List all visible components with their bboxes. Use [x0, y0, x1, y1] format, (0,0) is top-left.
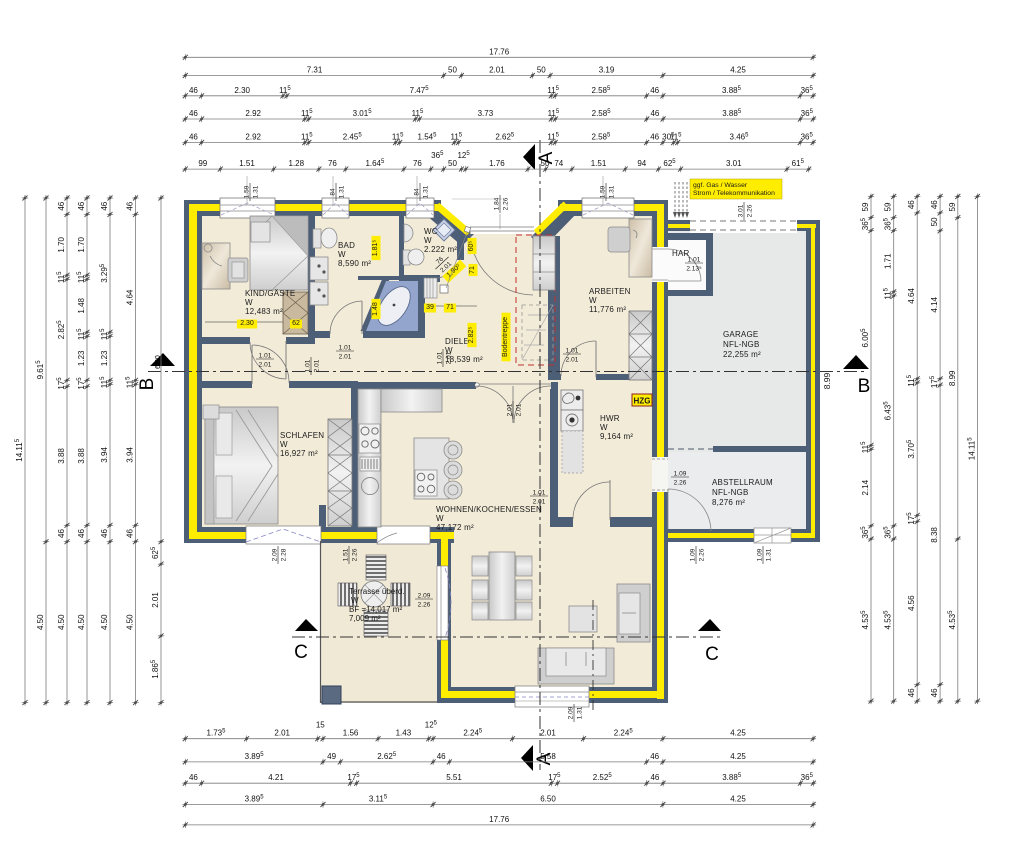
svg-text:71: 71	[446, 304, 454, 311]
svg-text:1.31: 1.31	[339, 185, 346, 198]
svg-text:W: W	[338, 250, 346, 259]
svg-text:46: 46	[100, 529, 109, 538]
svg-text:1.01: 1.01	[688, 257, 701, 264]
svg-text:DIELE: DIELE	[445, 337, 469, 346]
svg-text:W: W	[600, 423, 608, 432]
svg-text:W: W	[280, 440, 288, 449]
svg-text:GARAGE: GARAGE	[723, 330, 758, 339]
svg-text:5.58: 5.58	[540, 752, 556, 761]
svg-text:1.01: 1.01	[259, 353, 272, 360]
svg-text:2.01: 2.01	[339, 354, 352, 361]
svg-text:2.26: 2.26	[352, 548, 359, 561]
svg-text:59: 59	[948, 202, 957, 211]
svg-text:22,255 m²: 22,255 m²	[723, 350, 761, 359]
svg-text:1.31: 1.31	[609, 185, 616, 198]
svg-text:3.94: 3.94	[100, 447, 109, 463]
svg-text:2.01: 2.01	[274, 729, 290, 738]
svg-text:46: 46	[77, 529, 86, 538]
svg-text:Terrasse überd.: Terrasse überd.	[349, 587, 405, 596]
svg-text:2.01: 2.01	[446, 351, 453, 364]
svg-text:7.31: 7.31	[307, 66, 323, 75]
svg-text:1.43: 1.43	[396, 729, 412, 738]
svg-text:1.51: 1.51	[343, 548, 350, 561]
svg-text:46: 46	[57, 201, 66, 210]
svg-text:47,172 m²: 47,172 m²	[436, 523, 474, 532]
svg-text:W: W	[589, 296, 597, 305]
svg-text:2.92: 2.92	[245, 133, 261, 142]
svg-text:1.23: 1.23	[100, 350, 109, 366]
svg-text:46: 46	[650, 86, 659, 95]
svg-text:3.01: 3.01	[726, 159, 742, 168]
svg-text:BAD: BAD	[338, 241, 355, 250]
svg-text:46: 46	[57, 529, 66, 538]
svg-text:46: 46	[930, 688, 939, 697]
svg-text:1.59: 1.59	[244, 185, 251, 198]
svg-text:1.01: 1.01	[339, 345, 352, 352]
svg-text:3.88: 3.88	[77, 448, 86, 464]
svg-text:6.50: 6.50	[540, 795, 556, 804]
svg-text:8.38: 8.38	[930, 527, 939, 543]
svg-text:1.09: 1.09	[690, 548, 697, 561]
svg-text:2.01: 2.01	[507, 403, 514, 416]
svg-text:50: 50	[541, 159, 550, 168]
svg-text:8.99: 8.99	[948, 370, 957, 386]
svg-text:W: W	[245, 298, 253, 307]
svg-text:46: 46	[189, 86, 198, 95]
svg-text:46: 46	[650, 752, 659, 761]
svg-text:39: 39	[426, 304, 434, 311]
svg-text:84: 84	[330, 188, 337, 196]
svg-text:1.31: 1.31	[577, 706, 584, 719]
svg-text:4.25: 4.25	[730, 752, 746, 761]
svg-text:1.28: 1.28	[289, 159, 305, 168]
svg-text:50: 50	[930, 217, 939, 226]
svg-text:4.25: 4.25	[730, 729, 746, 738]
svg-text:ggf. Gas / Wasser: ggf. Gas / Wasser	[693, 182, 748, 189]
svg-text:1.59: 1.59	[600, 185, 607, 198]
svg-text:C: C	[705, 644, 719, 665]
svg-text:46: 46	[126, 529, 135, 538]
svg-text:1.48: 1.48	[77, 297, 86, 313]
svg-text:3.73: 3.73	[478, 109, 494, 118]
svg-text:2.82⁵: 2.82⁵	[468, 327, 475, 344]
svg-text:ARBEITEN: ARBEITEN	[589, 287, 631, 296]
svg-text:1.09: 1.09	[674, 471, 687, 478]
svg-text:1.01: 1.01	[437, 351, 444, 364]
svg-text:4.25: 4.25	[730, 795, 746, 804]
svg-text:2.01: 2.01	[516, 403, 523, 416]
svg-text:5.51: 5.51	[446, 773, 462, 782]
svg-text:76: 76	[413, 159, 422, 168]
svg-text:1.84: 1.84	[494, 197, 501, 210]
svg-text:WOHNEN/KOCHEN/ESSEN: WOHNEN/KOCHEN/ESSEN	[436, 505, 542, 514]
svg-text:1.76: 1.76	[489, 159, 505, 168]
svg-text:2.01: 2.01	[151, 592, 160, 608]
svg-text:1.70: 1.70	[77, 236, 86, 252]
svg-text:Strom / Telekommunikation: Strom / Telekommunikation	[693, 190, 775, 197]
svg-text:NFL-NGB: NFL-NGB	[712, 488, 749, 497]
svg-text:59: 59	[884, 202, 893, 211]
svg-text:4.56: 4.56	[907, 595, 916, 611]
svg-text:1.31: 1.31	[766, 548, 773, 561]
svg-text:46: 46	[189, 109, 198, 118]
svg-text:W: W	[351, 596, 359, 605]
svg-text:2.92: 2.92	[245, 109, 261, 118]
svg-text:2.26: 2.26	[747, 204, 754, 217]
svg-text:B: B	[858, 376, 871, 397]
svg-text:2.01: 2.01	[489, 66, 505, 75]
svg-text:8.99: 8.99	[822, 372, 832, 389]
svg-text:BF =14,017 m²: BF =14,017 m²	[349, 605, 402, 614]
svg-text:76: 76	[328, 159, 337, 168]
svg-text:46: 46	[189, 133, 198, 142]
svg-text:8,276 m²: 8,276 m²	[712, 498, 745, 507]
svg-text:1.01: 1.01	[566, 348, 579, 355]
svg-text:2.01: 2.01	[566, 357, 579, 364]
svg-text:4.64: 4.64	[126, 289, 135, 305]
svg-text:2.09: 2.09	[568, 706, 575, 719]
svg-text:46: 46	[77, 201, 86, 210]
svg-text:8,590 m²: 8,590 m²	[338, 259, 371, 268]
svg-text:2.28: 2.28	[281, 548, 288, 561]
svg-text:WC: WC	[424, 227, 438, 236]
svg-text:4.50: 4.50	[126, 614, 135, 630]
svg-text:4.21: 4.21	[268, 773, 284, 782]
svg-text:2.26: 2.26	[503, 197, 510, 210]
svg-text:3.88: 3.88	[57, 448, 66, 464]
svg-text:99: 99	[198, 159, 207, 168]
svg-text:1.09: 1.09	[757, 548, 764, 561]
svg-text:9,164 m²: 9,164 m²	[600, 432, 633, 441]
svg-text:11,776 m²: 11,776 m²	[589, 305, 626, 314]
svg-text:49: 49	[327, 752, 336, 761]
svg-text:50: 50	[448, 66, 457, 75]
svg-text:1.01: 1.01	[533, 490, 546, 497]
svg-text:4.50: 4.50	[77, 614, 86, 630]
svg-text:1.48: 1.48	[372, 302, 379, 316]
svg-text:1.23: 1.23	[77, 350, 86, 366]
svg-text:1.51: 1.51	[239, 159, 255, 168]
svg-text:2.01: 2.01	[533, 499, 546, 506]
svg-text:1.81⁵: 1.81⁵	[372, 240, 379, 257]
svg-text:KIND/GÄSTE: KIND/GÄSTE	[245, 289, 295, 298]
svg-text:7,009 m²: 7,009 m²	[349, 614, 381, 623]
svg-text:W: W	[424, 236, 432, 245]
svg-text:2.26: 2.26	[674, 480, 687, 487]
svg-text:46: 46	[907, 200, 916, 209]
svg-text:12,483 m²: 12,483 m²	[245, 307, 283, 316]
svg-text:1.01: 1.01	[305, 359, 312, 372]
svg-text:1.70: 1.70	[57, 236, 66, 252]
svg-text:HZG: HZG	[634, 397, 651, 406]
svg-text:1.51: 1.51	[591, 159, 607, 168]
svg-text:1.31: 1.31	[253, 185, 260, 198]
svg-text:46: 46	[189, 773, 198, 782]
svg-text:4.50: 4.50	[57, 614, 66, 630]
svg-text:2.09: 2.09	[272, 548, 279, 561]
svg-text:2.01: 2.01	[314, 359, 321, 372]
svg-text:3.01: 3.01	[738, 204, 745, 217]
svg-text:16,927 m²: 16,927 m²	[280, 449, 318, 458]
svg-text:SCHLAFEN: SCHLAFEN	[280, 431, 324, 440]
svg-text:46: 46	[930, 200, 939, 209]
svg-text:3.94: 3.94	[126, 447, 135, 463]
svg-text:46: 46	[650, 133, 659, 142]
svg-text:2.26: 2.26	[699, 548, 706, 561]
svg-text:3.19: 3.19	[599, 66, 615, 75]
svg-text:2.14: 2.14	[861, 479, 870, 495]
svg-text:2.30: 2.30	[234, 86, 250, 95]
svg-text:71: 71	[469, 266, 476, 274]
svg-text:15: 15	[316, 721, 325, 730]
svg-text:B: B	[137, 378, 158, 391]
svg-text:4.14: 4.14	[930, 296, 939, 312]
svg-text:2.222 m²: 2.222 m²	[424, 245, 457, 254]
svg-text:1.31: 1.31	[423, 185, 430, 198]
svg-text:62: 62	[292, 320, 300, 327]
svg-text:ABSTELLRAUM: ABSTELLRAUM	[712, 478, 773, 487]
svg-text:4.50: 4.50	[36, 614, 45, 630]
svg-text:17.76: 17.76	[489, 47, 510, 56]
svg-text:4.25: 4.25	[730, 66, 746, 75]
svg-text:1.71: 1.71	[884, 253, 893, 269]
svg-text:2.01: 2.01	[540, 729, 556, 738]
svg-text:46: 46	[907, 688, 916, 697]
svg-text:46: 46	[126, 201, 135, 210]
svg-text:NFL-NGB: NFL-NGB	[723, 340, 760, 349]
svg-text:60⁵: 60⁵	[468, 241, 475, 252]
svg-text:2.01: 2.01	[259, 362, 272, 369]
svg-text:50: 50	[537, 66, 546, 75]
svg-text:4.50: 4.50	[100, 614, 109, 630]
svg-text:17.76: 17.76	[489, 815, 510, 824]
svg-text:2.30: 2.30	[240, 320, 254, 327]
svg-text:46: 46	[650, 773, 659, 782]
svg-text:2.26: 2.26	[418, 602, 431, 609]
svg-text:C: C	[294, 642, 308, 663]
svg-text:2.13⁵: 2.13⁵	[686, 266, 702, 273]
svg-text:59: 59	[861, 202, 870, 211]
svg-text:84: 84	[414, 188, 421, 196]
svg-text:94: 94	[637, 159, 646, 168]
svg-text:Bodentreppe: Bodentreppe	[502, 317, 509, 357]
svg-text:W: W	[436, 514, 444, 523]
svg-text:74: 74	[554, 159, 563, 168]
svg-text:4.64: 4.64	[907, 288, 916, 304]
svg-text:50: 50	[448, 159, 457, 168]
svg-text:46: 46	[650, 109, 659, 118]
svg-text:2.09: 2.09	[418, 593, 431, 600]
svg-text:HWR: HWR	[600, 414, 620, 423]
svg-text:46: 46	[437, 752, 446, 761]
svg-text:1.56: 1.56	[343, 729, 359, 738]
svg-text:46: 46	[100, 201, 109, 210]
